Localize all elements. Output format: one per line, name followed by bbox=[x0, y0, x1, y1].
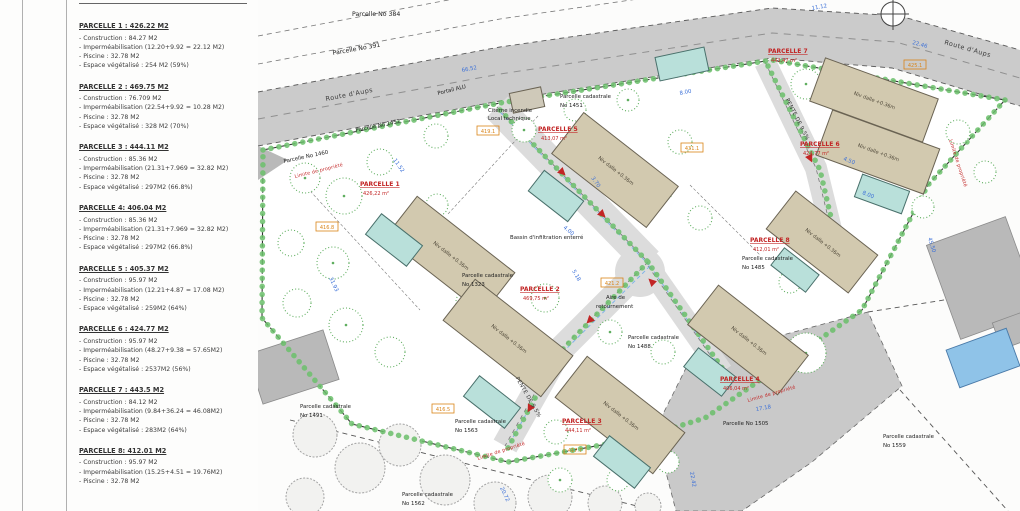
sheet-frame-line bbox=[66, 0, 67, 511]
label-cadastrale: Parcelle cadastrale bbox=[455, 419, 507, 425]
sheet-frame-line bbox=[22, 0, 23, 511]
label-cadastrale: Parcelle cadastrale bbox=[628, 335, 680, 341]
legend-parcel-6: PARCELLE 6 : 424.77 M2 - Construction : … bbox=[79, 325, 254, 374]
label-cadastrale: Parcelle cadastrale bbox=[300, 404, 352, 410]
elevation-value: 416.5 bbox=[436, 407, 450, 413]
label-cadastrale: Parcelle cadastrale bbox=[402, 492, 454, 498]
legend-parcel-4: PARCELLE 4: 406.04 M2 - Construction : 8… bbox=[79, 204, 254, 253]
label-cadastrale-1563: No 1563 bbox=[455, 428, 478, 434]
label-parcelle-6-area: 424,77 m² bbox=[803, 151, 829, 157]
parcel-line: - Construction : 84.12 M2 bbox=[79, 398, 254, 407]
neighbour-pool bbox=[946, 328, 1020, 387]
label-parcelle-1505: Parcelle No 1505 bbox=[723, 421, 768, 427]
label-parcelle-5: PARCELLE 5 bbox=[538, 126, 578, 133]
parcel-line: - Espace végétalisé : 254 M2 (59%) bbox=[79, 61, 254, 70]
legend-parcel-5: PARCELLE 5 : 405.37 M2 - Construction : … bbox=[79, 265, 254, 314]
label-cadastrale: Parcelle cadastrale bbox=[883, 434, 935, 440]
elevation-value: 421.2 bbox=[605, 281, 619, 287]
parcel-title: PARCELLE 8: 412.01 M2 bbox=[79, 447, 254, 455]
parcel-title: PARCELLE 3 : 444.11 M2 bbox=[79, 143, 254, 151]
parcel-title: PARCELLE 5 : 405.37 M2 bbox=[79, 265, 254, 273]
label-citerne: Citerne incendie bbox=[488, 108, 533, 114]
legend-parcel-8: PARCELLE 8: 412.01 M2 - Construction : 9… bbox=[79, 447, 254, 486]
label-parcelle-2: PARCELLE 2 bbox=[520, 286, 560, 293]
parcel-line: - Imperméabilisation (22.54+9.92 = 10.28… bbox=[79, 103, 254, 112]
parcel-line: - Construction : 95.97 M2 bbox=[79, 337, 254, 346]
label-parcelle-2-area: 469,75 m² bbox=[523, 296, 549, 302]
parcel-line: - Construction : 85.36 M2 bbox=[79, 155, 254, 164]
parcel-line: - Espace végétalisé : 283M2 (64%) bbox=[79, 426, 254, 435]
parcel-line: - Espace végétalisé : 259M2 (64%) bbox=[79, 304, 254, 313]
label-parcelle-7-area: 443,47 m² bbox=[771, 58, 797, 64]
label-parcelle-8: PARCELLE 8 bbox=[750, 237, 790, 244]
parcel-line: - Piscine : 32.78 M2 bbox=[79, 356, 254, 365]
parcel-title: PARCELLE 1 : 426.22 M2 bbox=[79, 22, 254, 30]
parcel-line: - Imperméabilisation (15.25+4.51 = 19.76… bbox=[79, 468, 254, 477]
label-local-technique: Local technique bbox=[488, 116, 531, 122]
legend-title-underline bbox=[79, 3, 247, 4]
parcel-legend: PARCELLE 1 : 426.22 M2 - Construction : … bbox=[79, 0, 254, 498]
label-cadastrale-1491: No 1491 bbox=[300, 413, 323, 419]
label-parcelle-3: PARCELLE 3 bbox=[562, 418, 602, 425]
label-parcelle-4: PARCELLE 4 bbox=[720, 376, 760, 383]
parcel-line: - Espace végétalisé : 297M2 (66.8%) bbox=[79, 243, 254, 252]
site-plan-drawing: 419.1 416.8 416.5 417.7 425.1 431.1 421.… bbox=[258, 0, 1020, 511]
parcel-line: - Imperméabilisation (21.31+7.969 = 32.8… bbox=[79, 164, 254, 173]
elevation-value: 417.7 bbox=[568, 448, 582, 454]
legend-panel: PARCELLE 1 : 426.22 M2 - Construction : … bbox=[0, 0, 258, 511]
label-parcelle-3-area: 444,11 m² bbox=[565, 428, 591, 434]
label-parcelle-391: Parcelle No 391 bbox=[332, 42, 381, 57]
label-cadastrale: Parcelle cadastrale bbox=[742, 256, 794, 262]
parcel-line: - Espace végétalisé : 328 M2 (70%) bbox=[79, 122, 254, 131]
legend-parcel-7: PARCELLE 7 : 443.5 M2 - Construction : 8… bbox=[79, 386, 254, 435]
parcel-line: - Construction : 95.97 M2 bbox=[79, 458, 254, 467]
label-cadastrale-1562: No 1562 bbox=[402, 501, 425, 507]
label-cadastrale-1485: No 1485 bbox=[742, 265, 765, 271]
parcel-line: - Piscine : 32.78 M2 bbox=[79, 416, 254, 425]
label-bassin-infiltration: Bassin d'infiltration enterré bbox=[510, 234, 584, 241]
label-parcelle-1-area: 426,22 m² bbox=[363, 191, 389, 197]
parcel-title: PARCELLE 6 : 424.77 M2 bbox=[79, 325, 254, 333]
legend-parcel-3: PARCELLE 3 : 444.11 M2 - Construction : … bbox=[79, 143, 254, 192]
parcel-line: - Espace végétalisé : 2537M2 (56%) bbox=[79, 365, 254, 374]
parcel-line: - Construction : 76.709 M2 bbox=[79, 94, 254, 103]
label-parcelle-5-area: 413,07 m² bbox=[541, 136, 567, 142]
parcel-title: PARCELLE 7 : 443.5 M2 bbox=[79, 386, 254, 394]
parcel-line: - Piscine : 32.78 M2 bbox=[79, 113, 254, 122]
label-aire-de-retournement: Aire de bbox=[606, 295, 626, 301]
label-parcelle-4-area: 406,04 m² bbox=[723, 386, 749, 392]
elevation-value: 431.1 bbox=[685, 146, 699, 152]
parcel-line: - Piscine : 32.78 M2 bbox=[79, 173, 254, 182]
parcel-title: PARCELLE 4: 406.04 M2 bbox=[79, 204, 254, 212]
parcel-line: - Imperméabilisation (21.31+7.969 = 32.8… bbox=[79, 225, 254, 234]
parcel-line: - Construction : 84.27 M2 bbox=[79, 34, 254, 43]
label-cadastrale: Parcelle cadastrale bbox=[560, 94, 612, 100]
parcel-title: PARCELLE 2 : 469.75 M2 bbox=[79, 83, 254, 91]
label-aire-de-retournement: retournement bbox=[596, 304, 633, 310]
parcel-line: - Piscine : 32.78 M2 bbox=[79, 295, 254, 304]
parcel-line: - Construction : 85.36 M2 bbox=[79, 216, 254, 225]
label-parcelle-384: Parcelle No 384 bbox=[352, 11, 400, 18]
label-cadastrale-1559: No 1559 bbox=[883, 443, 906, 449]
site-plan-sheet: PARCELLE 1 : 426.22 M2 - Construction : … bbox=[0, 0, 1020, 511]
label-cadastrale-1323: No 1323 bbox=[462, 282, 485, 288]
parcel-line: - Construction : 95.97 M2 bbox=[79, 276, 254, 285]
parcel-line: - Piscine : 32.78 M2 bbox=[79, 234, 254, 243]
parcel-line: - Piscine : 32.78 M2 bbox=[79, 52, 254, 61]
label-parcelle-7: PARCELLE 7 bbox=[768, 48, 808, 55]
label-cadastrale-1488: No 1488 bbox=[628, 344, 651, 350]
label-parcelle-6: PARCELLE 6 bbox=[800, 141, 840, 148]
parcel-line: - Imperméabilisation (9.84+36.24 = 46.08… bbox=[79, 407, 254, 416]
label-cadastrale-1451: No 1451 bbox=[560, 103, 583, 109]
parcel-line: - Imperméabilisation (12.20+9.92 = 22.12… bbox=[79, 43, 254, 52]
elevation-value: 416.8 bbox=[320, 225, 334, 231]
label-cadastrale: Parcelle cadastrale bbox=[462, 273, 514, 279]
dim-11-12: 11.12 bbox=[811, 3, 827, 12]
label-parcelle-8-area: 412,01 m² bbox=[753, 247, 779, 253]
parcel-line: - Piscine : 32.78 M2 bbox=[79, 477, 254, 486]
legend-parcel-2: PARCELLE 2 : 469.75 M2 - Construction : … bbox=[79, 83, 254, 132]
parcel-line: - Imperméabilisation (48.27+9.38 = 57.65… bbox=[79, 346, 254, 355]
elevation-value: 425.1 bbox=[908, 63, 922, 69]
legend-parcel-1: PARCELLE 1 : 426.22 M2 - Construction : … bbox=[79, 22, 254, 71]
label-parcelle-1: PARCELLE 1 bbox=[360, 181, 400, 188]
elevation-value: 419.1 bbox=[481, 129, 495, 135]
parcel-line: - Imperméabilisation (12.21+4.87 = 17.08… bbox=[79, 286, 254, 295]
parcel-line: - Espace végétalisé : 297M2 (66.8%) bbox=[79, 183, 254, 192]
